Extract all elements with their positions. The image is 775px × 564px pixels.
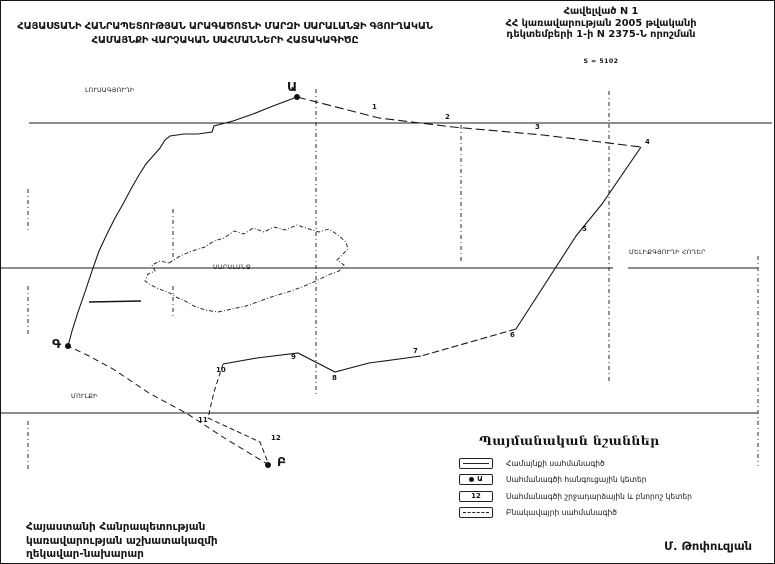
boundary-point-label-5: 5	[582, 225, 587, 233]
grid-horizontal-lines	[1, 123, 772, 413]
legend-item-label: Համայնքի սահմանագիծ	[506, 459, 605, 468]
region-label-0: ԼՈՒՍԱԳՅՈՒՂԻ	[85, 87, 134, 94]
boundary-point-label-10: 10	[216, 366, 226, 374]
node-dot-icon	[469, 477, 474, 482]
region-label-2: ՍԱՐԱԼԱՆՋ	[213, 264, 251, 271]
boundary-node-dot-Բ	[265, 462, 271, 468]
community-boundary-southeast	[421, 329, 516, 356]
boundary-point-label-Բ: Բ	[277, 454, 286, 469]
issuer-line3: ղեկավար-նախարար	[26, 548, 218, 562]
issuer-block: Հայաստանի Հանրապետության կառավարության ա…	[26, 521, 218, 562]
boundary-point-label-12: 12	[271, 434, 281, 442]
grid-vertical-lines	[28, 89, 758, 469]
boundary-point-label-6: 6	[510, 331, 515, 339]
annex-note: Հավելված N 1 ՀՀ կառավարության 2005 թվակա…	[436, 6, 766, 67]
boundary-point-label-Ա: Ա	[287, 79, 297, 94]
community-boundary-symbol	[459, 458, 493, 469]
boundary-point-label-11: 11	[198, 416, 208, 424]
scale-note: S = 5102	[436, 56, 766, 68]
region-label-1: ՄԵԼԻՔԳՅՈՒՂԻ ՀՈՂԵՐ	[629, 249, 706, 256]
solid-line-icon	[463, 463, 489, 464]
legend-title: Պայմանական նշաններ	[459, 433, 759, 448]
legend-item-turning-points: 12 Սահմանագծի շրջադարձային և բնորոշ կետե…	[459, 490, 759, 502]
node-letter: Ա	[477, 476, 483, 483]
boundary-point-label-9: 9	[291, 353, 296, 361]
legend: Պայմանական նշաններ Համայնքի սահմանագիծ Ա…	[459, 433, 759, 523]
region-label-3: ՄՈՒԼՔԻ	[71, 393, 98, 400]
dashed-line-icon	[463, 512, 489, 513]
boundary-point-label-8: 8	[332, 374, 337, 382]
boundary-node-dot-Ա	[294, 94, 300, 100]
issuer-line2: կառավարության աշխատակազմի	[26, 535, 218, 549]
short-boundary-segment	[89, 301, 141, 302]
plan-document: ԱԲԳ123456789101112ԼՈՒՍԱԳՅՈՒՂԻՄԵԼԻՔԳՅՈՒՂԻ…	[0, 0, 775, 564]
page-title-line2: ՀԱՄԱՅՆՔԻ ՎԱՐՉԱԿԱՆ ՍԱՀՄԱՆՆԵՐԻ ՀԱՏԱԿԱԳԻԾԸ	[5, 34, 445, 48]
community-boundary-north	[297, 97, 641, 147]
turning-point-symbol: 12	[459, 491, 493, 502]
issuer-line1: Հայաստանի Հանրապետության	[26, 521, 218, 535]
signature: Մ. Թոփուզյան	[664, 539, 752, 553]
community-boundary-south	[223, 353, 421, 372]
boundary-point-label-2: 2	[445, 113, 450, 121]
boundary-point-label-4: 4	[645, 138, 650, 146]
page-title: ՀԱՅԱՍՏԱՆԻ ՀԱՆՐԱՊԵՏՈՒԹՅԱՆ ԱՐԱԳԱԾՈՏՆԻ ՄԱՐԶ…	[5, 20, 445, 47]
legend-item-label: Սահմանագծի հանգուցային կետեր	[506, 475, 646, 484]
community-boundary-northwest	[68, 97, 297, 346]
legend-item-settlement-boundary: Բնակավայրի սահմանագիծ	[459, 507, 759, 519]
turning-point-number: 12	[471, 493, 481, 500]
community-boundary-west-diagonal	[68, 346, 269, 465]
boundary-point-label-3: 3	[535, 123, 540, 131]
boundary-node-dot-Գ	[65, 343, 71, 349]
nodal-point-symbol: Ա	[459, 474, 493, 485]
community-boundary-east	[516, 147, 641, 329]
settlement-boundary-symbol	[459, 507, 493, 518]
legend-item-nodal-points: Ա Սահմանագծի հանգուցային կետեր	[459, 474, 759, 486]
boundary-point-label-Գ: Գ	[52, 336, 61, 351]
boundary-point-label-7: 7	[413, 347, 418, 355]
legend-item-label: Բնակավայրի սահմանագիծ	[506, 508, 617, 517]
legend-item-label: Սահմանագծի շրջադարձային և բնորոշ կետեր	[506, 492, 692, 501]
annex-line2: ՀՀ կառավարության 2005 թվականի	[436, 18, 766, 30]
legend-item-community-boundary: Համայնքի սահմանագիծ	[459, 457, 759, 469]
boundary-point-label-1: 1	[372, 103, 377, 111]
page-title-line1: ՀԱՅԱՍՏԱՆԻ ՀԱՆՐԱՊԵՏՈՒԹՅԱՆ ԱՐԱԳԱԾՈՏՆԻ ՄԱՐԶ…	[5, 20, 445, 34]
annex-line3: դեկտեմբերի 1-ի N 2375-Ն որոշման	[436, 29, 766, 41]
annex-line1: Հավելված N 1	[436, 6, 766, 18]
community-boundary-southwest	[208, 364, 269, 465]
